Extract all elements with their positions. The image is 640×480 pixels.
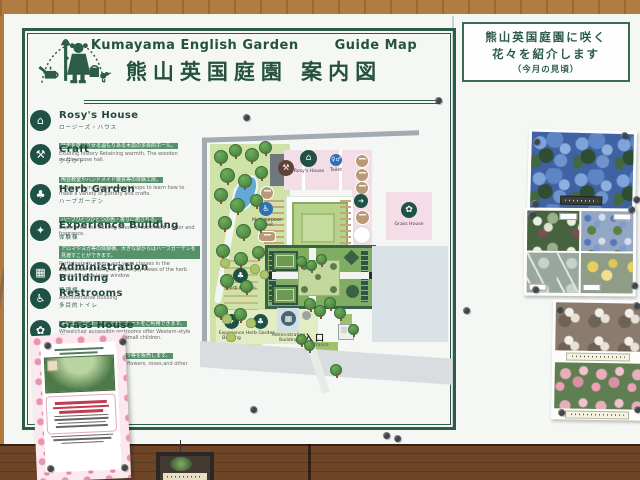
flyer-text-box	[46, 393, 118, 434]
title-guide-map: Guide Map	[335, 38, 418, 53]
event-flyer	[31, 332, 131, 480]
map-label-toilet: Toilet	[322, 168, 350, 173]
parterre-bed	[272, 285, 298, 305]
notice-line-2: 花々を紹介します	[464, 46, 628, 63]
tree-icon	[252, 246, 265, 259]
magnet-icon	[243, 114, 250, 121]
magnet-icon	[628, 206, 635, 213]
blue-flowers-photo	[581, 211, 633, 251]
herb-icon: ♣	[30, 184, 51, 205]
green-bouquet-photo	[527, 211, 579, 251]
seasonal-flower-grid-photo	[524, 208, 637, 297]
blossom-rose-photo-sheet	[551, 299, 640, 421]
magnet-icon	[394, 435, 401, 442]
building-icon: ▦	[30, 262, 51, 283]
tree-icon	[238, 174, 252, 188]
title-english: Kumayama English Garden	[91, 38, 299, 53]
tree-icon	[255, 166, 268, 179]
map-grass-house-building: ✿ Grass House	[386, 192, 432, 240]
magnet-icon	[533, 138, 540, 145]
magnet-icon	[435, 97, 442, 104]
map-parking-area	[372, 246, 448, 342]
tree-icon	[216, 244, 230, 258]
garden-spot-icon	[355, 154, 369, 168]
parterre-bed	[272, 251, 298, 271]
magnet-icon	[633, 196, 640, 203]
seasonal-flowers-notice: 熊山英国庭園に咲く 花々を紹介します （今月の見頃）	[462, 22, 630, 82]
tree-icon	[220, 168, 235, 183]
photo-caption-chip	[613, 213, 631, 220]
bush-icon	[226, 332, 236, 342]
garden-map: ✿ Grass House ⚒ ⌂ Rosy's House ♀♂ Toilet…	[200, 128, 452, 406]
experience-house-icon: ✦	[30, 220, 51, 241]
magnet-icon	[631, 282, 638, 289]
plant-label	[163, 473, 207, 480]
tree-icon	[324, 297, 336, 309]
tree-icon	[245, 148, 259, 162]
wheelchair-icon: ♿	[30, 288, 51, 309]
administration-building-map-icon: ▦	[281, 311, 296, 326]
magnet-icon	[528, 211, 535, 218]
exit-icon: ➔	[354, 194, 368, 208]
tree-icon	[306, 260, 317, 271]
guide-map-sign-photo: Kumayama English Garden Guide Map 熊山英国庭園…	[0, 0, 640, 480]
magnet-icon	[250, 406, 257, 413]
flower-icon: ✿	[401, 202, 417, 218]
tree-icon	[314, 305, 326, 317]
tree-icon	[259, 141, 272, 154]
tree-icon	[330, 364, 342, 376]
magnet-icon	[556, 306, 563, 313]
flyer-garden-photo	[44, 355, 116, 394]
house-icon: ⌂	[30, 110, 51, 131]
title-japanese: 熊山英国庭園 案内図	[74, 56, 434, 86]
photo-caption-chip	[559, 213, 577, 220]
rosys-house-map-icon: ⌂	[300, 150, 317, 167]
notice-line-3: （今月の見頃）	[464, 63, 628, 75]
tree-icon	[348, 324, 359, 335]
tree-icon	[220, 274, 234, 288]
photo-caption-chip	[565, 410, 629, 419]
tree-icon	[229, 144, 242, 157]
parterre-diamond	[344, 250, 360, 266]
tree-icon	[214, 150, 228, 164]
magnet-icon	[621, 132, 628, 139]
tree-icon	[218, 216, 232, 230]
plant-photo	[170, 457, 192, 471]
tree-icon	[236, 224, 251, 239]
tree-icon	[316, 254, 327, 265]
magnet-icon	[463, 307, 470, 314]
magnet-icon	[47, 465, 54, 472]
garden-spot-icon	[355, 210, 370, 225]
magnet-icon	[532, 286, 539, 293]
flyer-title-line	[59, 351, 98, 355]
magnet-icon	[634, 406, 640, 413]
tree-icon	[230, 198, 245, 213]
tree-icon	[250, 194, 263, 207]
yellow-roses-photo	[581, 253, 633, 293]
notice-line-1: 熊山英国庭園に咲く	[464, 29, 628, 46]
flyer-stamp	[47, 360, 58, 371]
blue-hydrangea-photo	[527, 129, 637, 214]
craft-tools-icon: ⚒	[30, 144, 51, 165]
photo-caption-chip	[566, 352, 630, 361]
white-blossom-photo	[555, 302, 640, 351]
tree-icon	[254, 218, 267, 231]
magnet-icon	[531, 200, 538, 207]
round-bed-icon	[353, 226, 371, 244]
bush-icon	[246, 318, 256, 328]
parterre-circle	[346, 285, 359, 298]
toilet-map-icon: ♀♂	[330, 154, 342, 166]
bush-icon	[222, 314, 232, 324]
magnet-icon	[44, 342, 51, 349]
tree-icon	[214, 188, 228, 202]
magnet-icon	[383, 432, 390, 439]
plant-photo-frame	[156, 452, 214, 480]
bush-icon	[260, 270, 269, 279]
pink-rose-photo	[554, 362, 640, 409]
map-label-grass-house: Grass House	[386, 222, 432, 227]
magnet-icon	[633, 302, 640, 309]
title-divider-rule	[84, 100, 440, 104]
paver-circle	[302, 311, 311, 320]
tree-icon	[234, 308, 247, 321]
photo-caption-chip	[560, 195, 602, 205]
garden-spot-icon	[355, 168, 369, 182]
magnet-icon	[558, 409, 565, 416]
tree-icon	[304, 340, 315, 351]
bush-icon	[250, 264, 260, 274]
magnet-icon	[121, 464, 128, 471]
tree-icon	[240, 280, 253, 293]
bush-icon	[220, 258, 230, 268]
courtyard-inner-lawn	[301, 213, 335, 243]
tree-icon	[334, 307, 346, 319]
tree-icon	[234, 252, 248, 266]
garden-spot-icon	[355, 181, 369, 195]
magnet-icon	[119, 338, 126, 345]
photo-caption-chip	[583, 284, 601, 291]
